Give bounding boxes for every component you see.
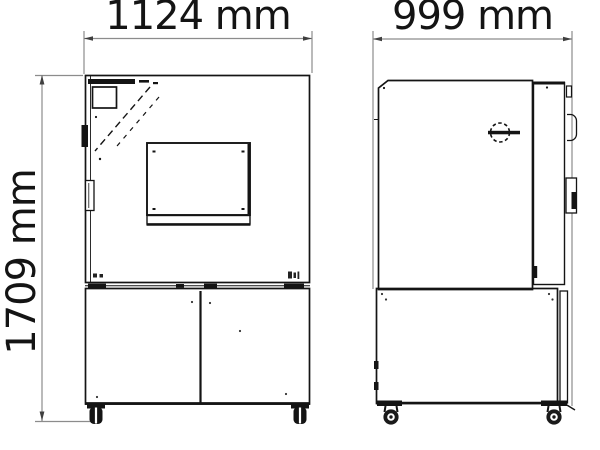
viewing-window <box>147 143 250 215</box>
technical-drawing: 1124 mm 999 mm 1709 mm <box>0 0 600 450</box>
control-panel-display <box>93 87 117 108</box>
dimension-label-height: 1709 mm <box>0 162 44 362</box>
side-caster-left <box>383 406 398 425</box>
dimension-label-front-width: 1124 mm <box>84 0 312 35</box>
door-hinges <box>566 86 577 213</box>
side-view <box>374 81 577 425</box>
front-caster-right <box>291 404 309 424</box>
window-sill <box>147 216 250 225</box>
side-door <box>534 83 565 285</box>
front-view <box>82 76 311 425</box>
screw-dots-side <box>381 293 554 301</box>
control-panel-diagonal-2 <box>117 97 159 146</box>
door-label-marks <box>93 272 299 280</box>
front-door-handle <box>86 181 95 211</box>
control-panel-top-bar <box>88 79 135 84</box>
side-lower-front-panel <box>560 291 568 403</box>
dimension-label-side-depth: 999 mm <box>373 0 572 35</box>
screw-dots <box>96 301 287 398</box>
access-port-plug <box>488 131 520 135</box>
drawing-canvas <box>0 0 600 450</box>
front-lower-compartment <box>86 289 310 405</box>
front-door-lock <box>82 125 89 147</box>
hinge-top <box>567 86 572 97</box>
side-caster-right <box>546 406 561 425</box>
side-body <box>379 81 533 290</box>
side-lower-compartment <box>377 289 558 404</box>
dimension-arrowheads <box>40 36 572 421</box>
caster-brake-tick <box>566 405 575 411</box>
